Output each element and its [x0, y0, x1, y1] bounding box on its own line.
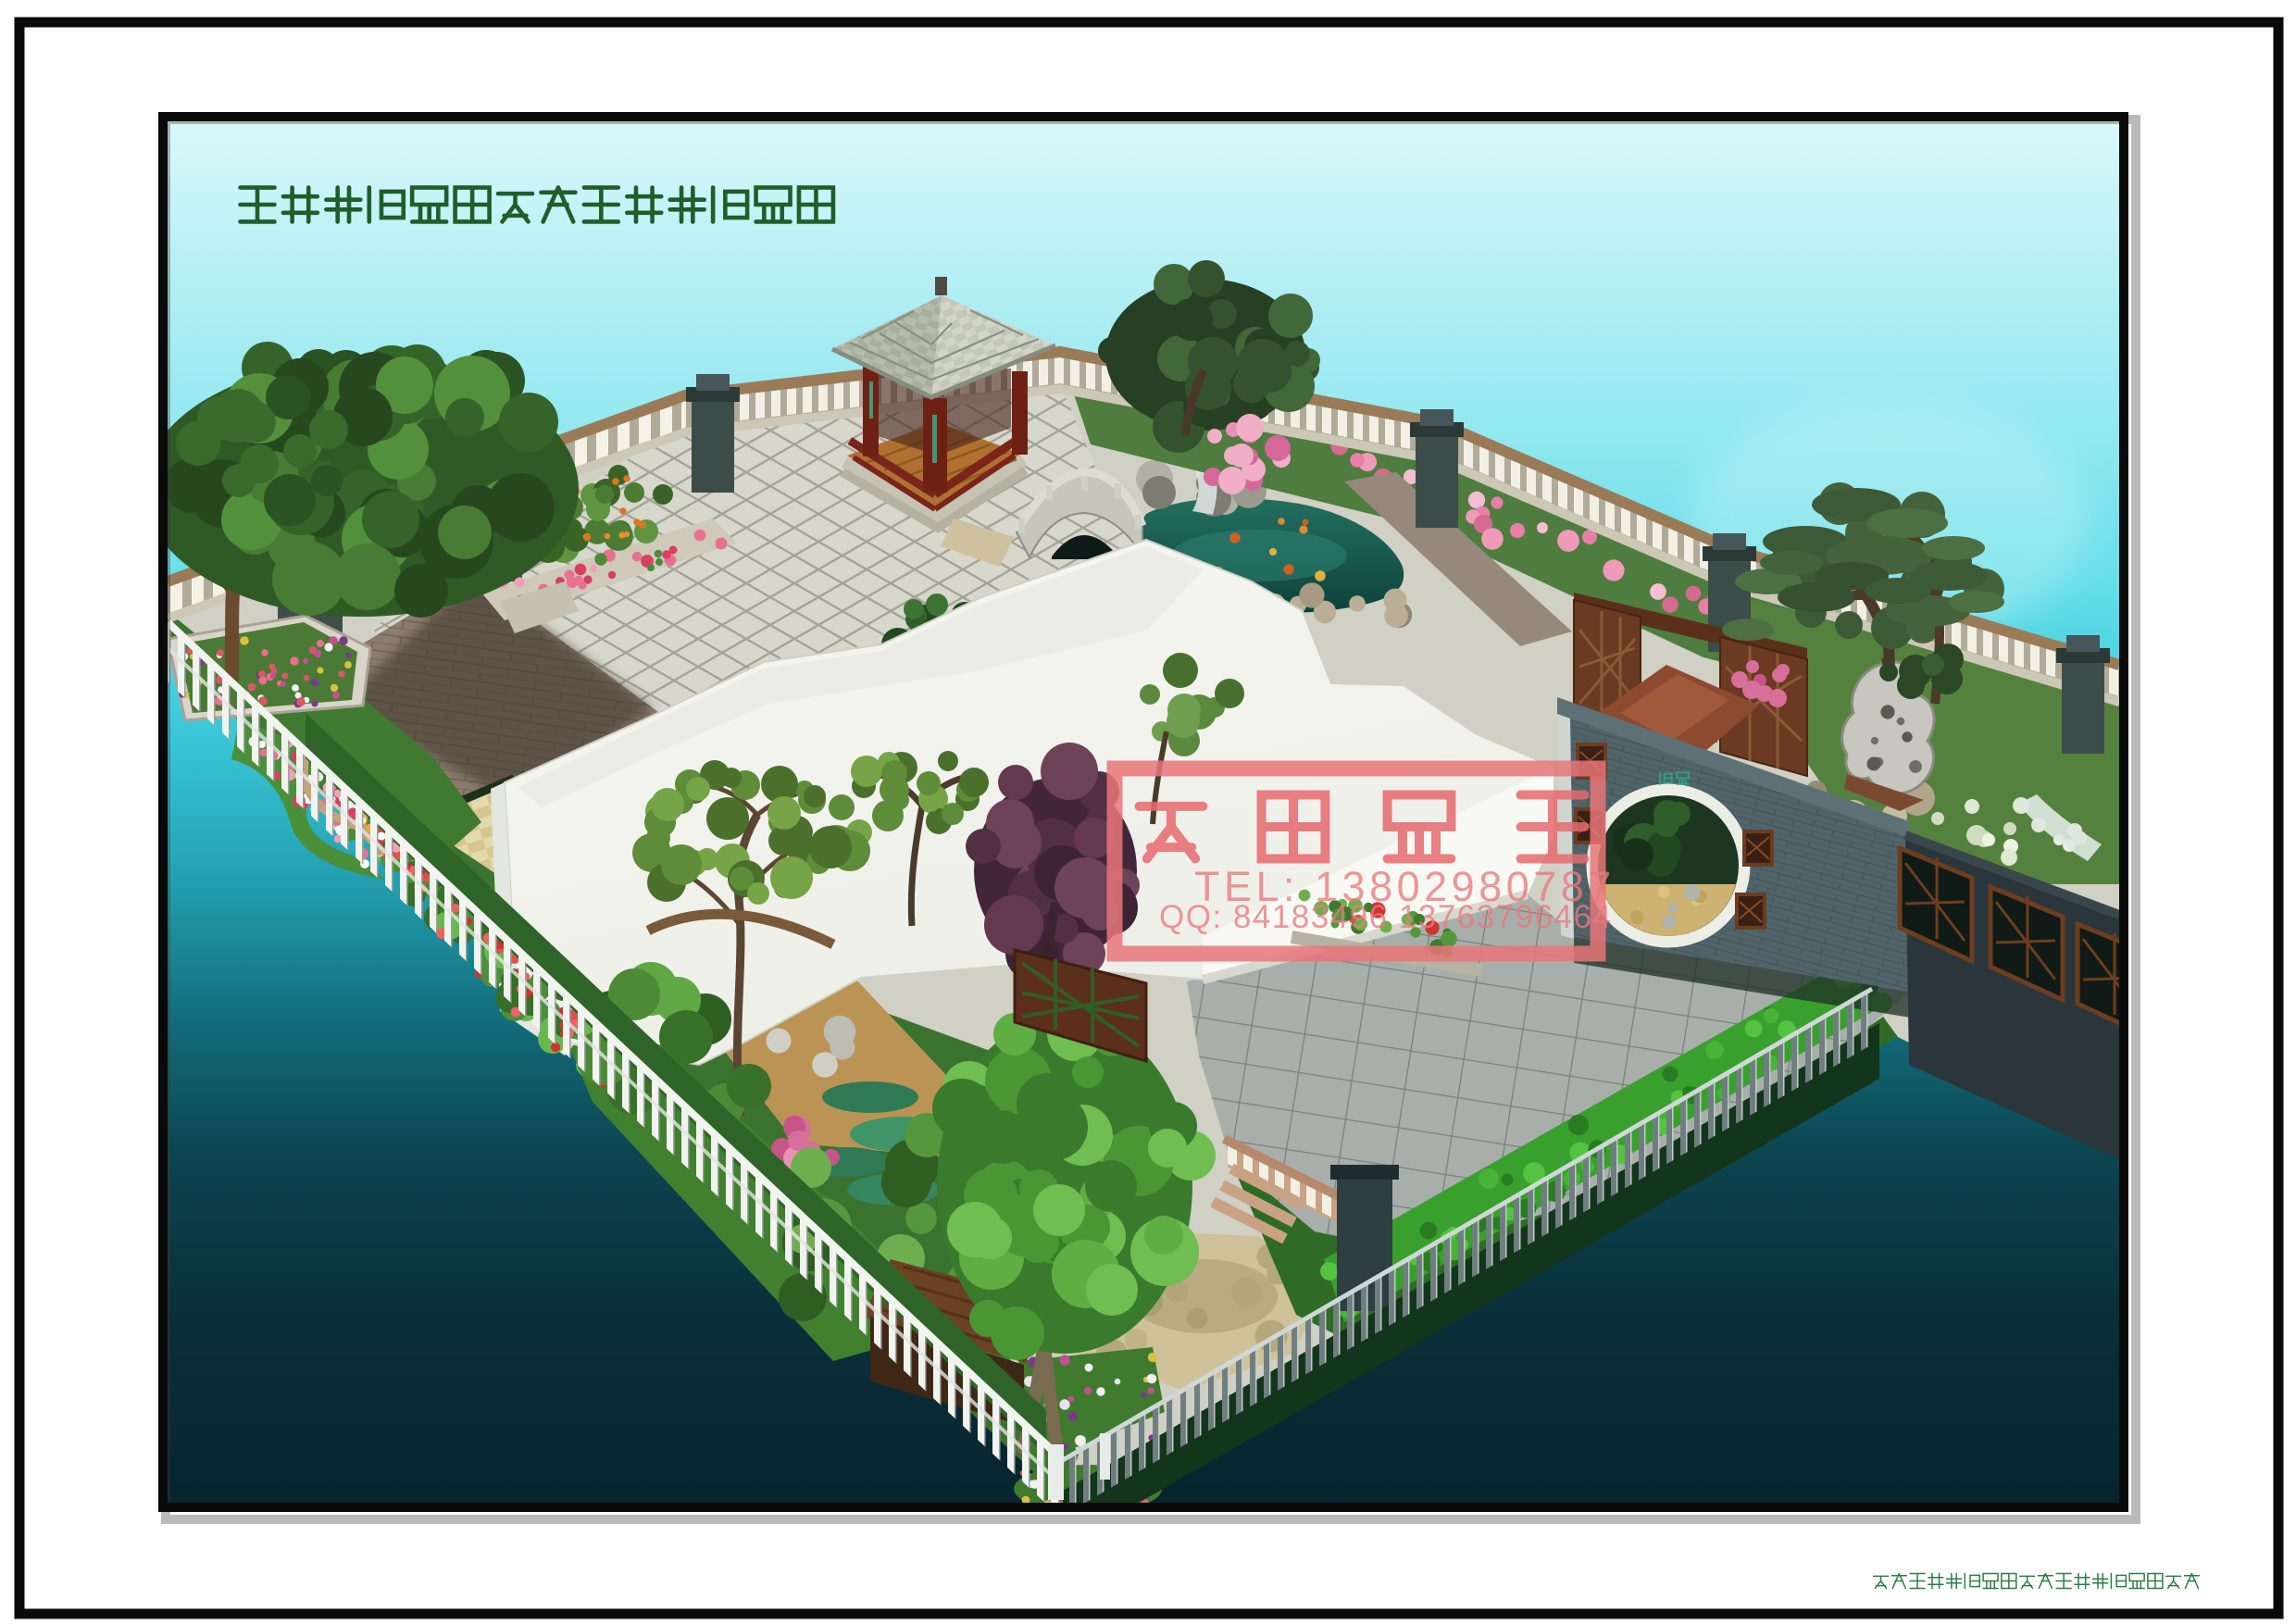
svg-text:QQ: 84183496 13763796464: QQ: 84183496 13763796464: [1159, 899, 1612, 935]
